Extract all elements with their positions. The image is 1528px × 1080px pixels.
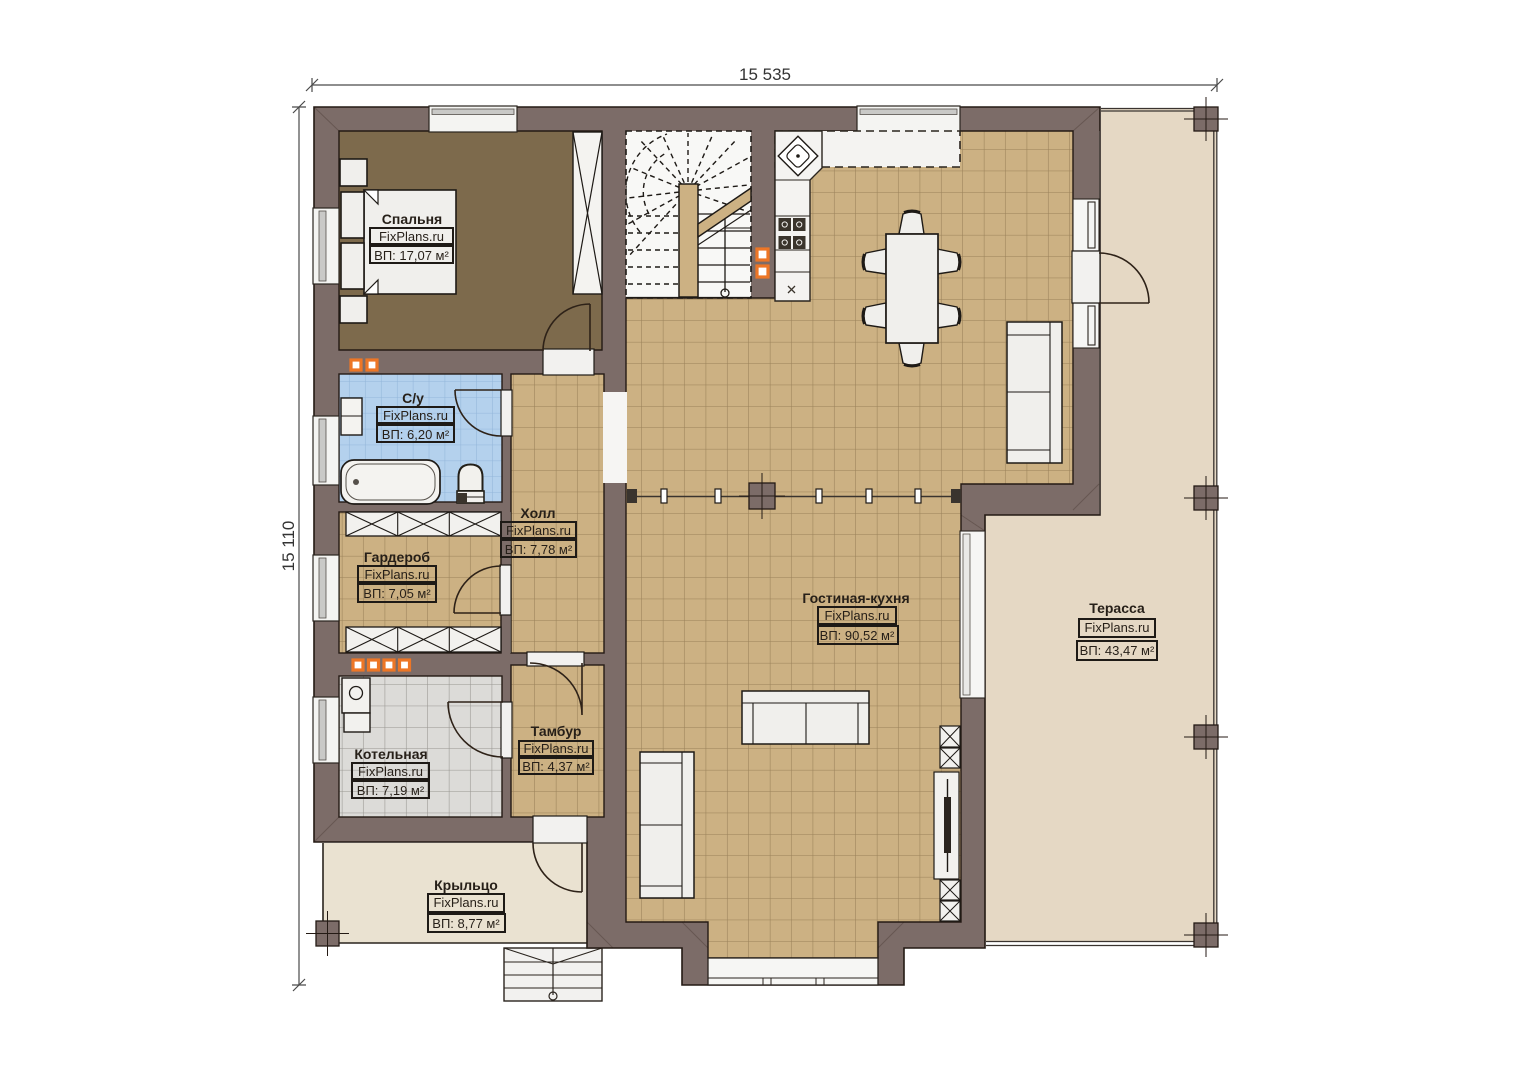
svg-text:ВП: 17,07 м²: ВП: 17,07 м²: [374, 248, 449, 263]
svg-text:ВП: 7,05 м²: ВП: 7,05 м²: [363, 586, 431, 601]
svg-text:15 110: 15 110: [279, 521, 298, 572]
svg-text:ВП: 6,20 м²: ВП: 6,20 м²: [382, 427, 450, 442]
svg-text:Гостиная-кухня: Гостиная-кухня: [802, 590, 909, 606]
svg-text:Холл: Холл: [520, 505, 555, 521]
svg-text:ВП: 8,77 м²: ВП: 8,77 м²: [432, 916, 500, 931]
svg-text:FixPlans.ru: FixPlans.ru: [506, 523, 571, 538]
svg-text:Гардероб: Гардероб: [364, 549, 431, 565]
svg-text:FixPlans.ru: FixPlans.ru: [433, 895, 498, 910]
svg-text:FixPlans.ru: FixPlans.ru: [1084, 620, 1149, 635]
svg-text:ВП: 7,19 м²: ВП: 7,19 м²: [357, 783, 425, 798]
svg-text:Крыльцо: Крыльцо: [434, 877, 498, 893]
svg-text:FixPlans.ru: FixPlans.ru: [379, 229, 444, 244]
svg-text:Терасса: Терасса: [1089, 600, 1145, 616]
svg-text:FixPlans.ru: FixPlans.ru: [364, 567, 429, 582]
svg-text:FixPlans.ru: FixPlans.ru: [523, 741, 588, 756]
svg-text:15 535: 15 535: [739, 65, 791, 84]
svg-text:С/у: С/у: [402, 390, 424, 406]
svg-text:Спальня: Спальня: [382, 211, 442, 227]
svg-text:ВП: 7,78 м²: ВП: 7,78 м²: [505, 542, 573, 557]
svg-text:ВП: 43,47 м²: ВП: 43,47 м²: [1080, 643, 1155, 658]
svg-text:FixPlans.ru: FixPlans.ru: [383, 408, 448, 423]
svg-text:Тамбур: Тамбур: [531, 723, 582, 739]
svg-text:Котельная: Котельная: [354, 746, 427, 762]
svg-text:ВП: 90,52 м²: ВП: 90,52 м²: [820, 628, 895, 643]
svg-text:FixPlans.ru: FixPlans.ru: [824, 608, 889, 623]
svg-text:FixPlans.ru: FixPlans.ru: [358, 764, 423, 779]
svg-text:ВП: 4,37 м²: ВП: 4,37 м²: [522, 759, 590, 774]
